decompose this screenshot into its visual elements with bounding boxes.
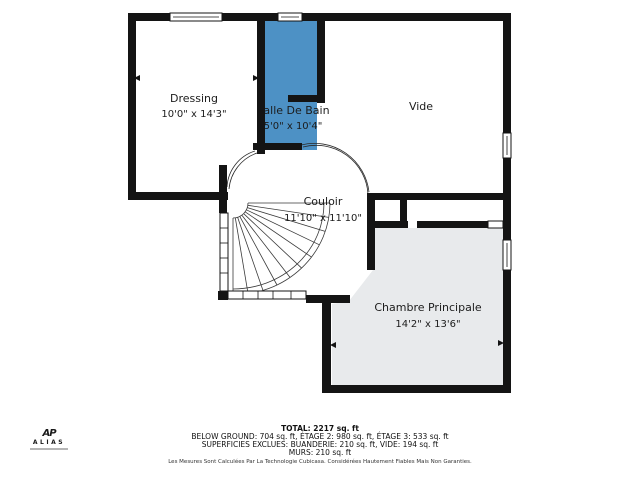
wall xyxy=(400,198,407,224)
area-summary: TOTAL: 2217 sq. ft BELOW GROUND: 704 sq.… xyxy=(0,424,640,458)
wall xyxy=(219,165,227,213)
measurement-disclaimer: Les Mesures Sont Calculées Par La Techno… xyxy=(0,459,640,465)
wall xyxy=(503,13,511,133)
door-arcs xyxy=(227,143,369,194)
wall xyxy=(257,13,265,154)
door-arc xyxy=(303,145,368,194)
window xyxy=(488,221,503,228)
room-label-chambre-principale: Chambre Principale xyxy=(374,301,482,314)
wall xyxy=(322,296,331,393)
floorplan-page: Dressing 10'0" x 14'3" Salle De Bain 5'0… xyxy=(0,0,640,480)
wall xyxy=(371,193,511,200)
logo-name: ALIAS xyxy=(26,439,72,447)
wall xyxy=(503,270,511,392)
railing xyxy=(228,291,306,299)
room-label-vide: Vide xyxy=(409,100,433,113)
wall xyxy=(253,143,302,150)
room-label-salle-de-bain: Salle De Bain xyxy=(256,104,329,117)
wall xyxy=(417,221,488,228)
room-dims-salle-de-bain: 5'0" x 10'4" xyxy=(264,121,323,132)
room-label-dressing: Dressing xyxy=(170,92,218,105)
room-label-couloir: Couloir xyxy=(304,195,343,208)
wall xyxy=(218,291,228,300)
door-arc xyxy=(229,153,257,189)
wall xyxy=(288,95,325,102)
wall xyxy=(317,13,325,103)
door-arc xyxy=(227,151,255,187)
railing xyxy=(220,213,228,291)
wall xyxy=(503,200,511,240)
room-dims-couloir: 11'10" x 11'10" xyxy=(284,213,362,224)
floorplan-drawing: Dressing 10'0" x 14'3" Salle De Bain 5'0… xyxy=(0,0,640,480)
room-dims-dressing: 10'0" x 14'3" xyxy=(161,109,226,120)
room-dims-chambre-principale: 14'2" x 13'6" xyxy=(395,319,460,330)
wall xyxy=(322,385,511,393)
logo-monogram-icon: AP xyxy=(26,428,72,439)
logo-tagline xyxy=(30,448,68,450)
alias-logo: AP ALIAS xyxy=(26,428,72,450)
wall xyxy=(367,193,375,270)
wall xyxy=(371,221,408,228)
wall xyxy=(128,13,136,200)
summary-walls: MURS: 210 sq. ft xyxy=(0,449,640,457)
